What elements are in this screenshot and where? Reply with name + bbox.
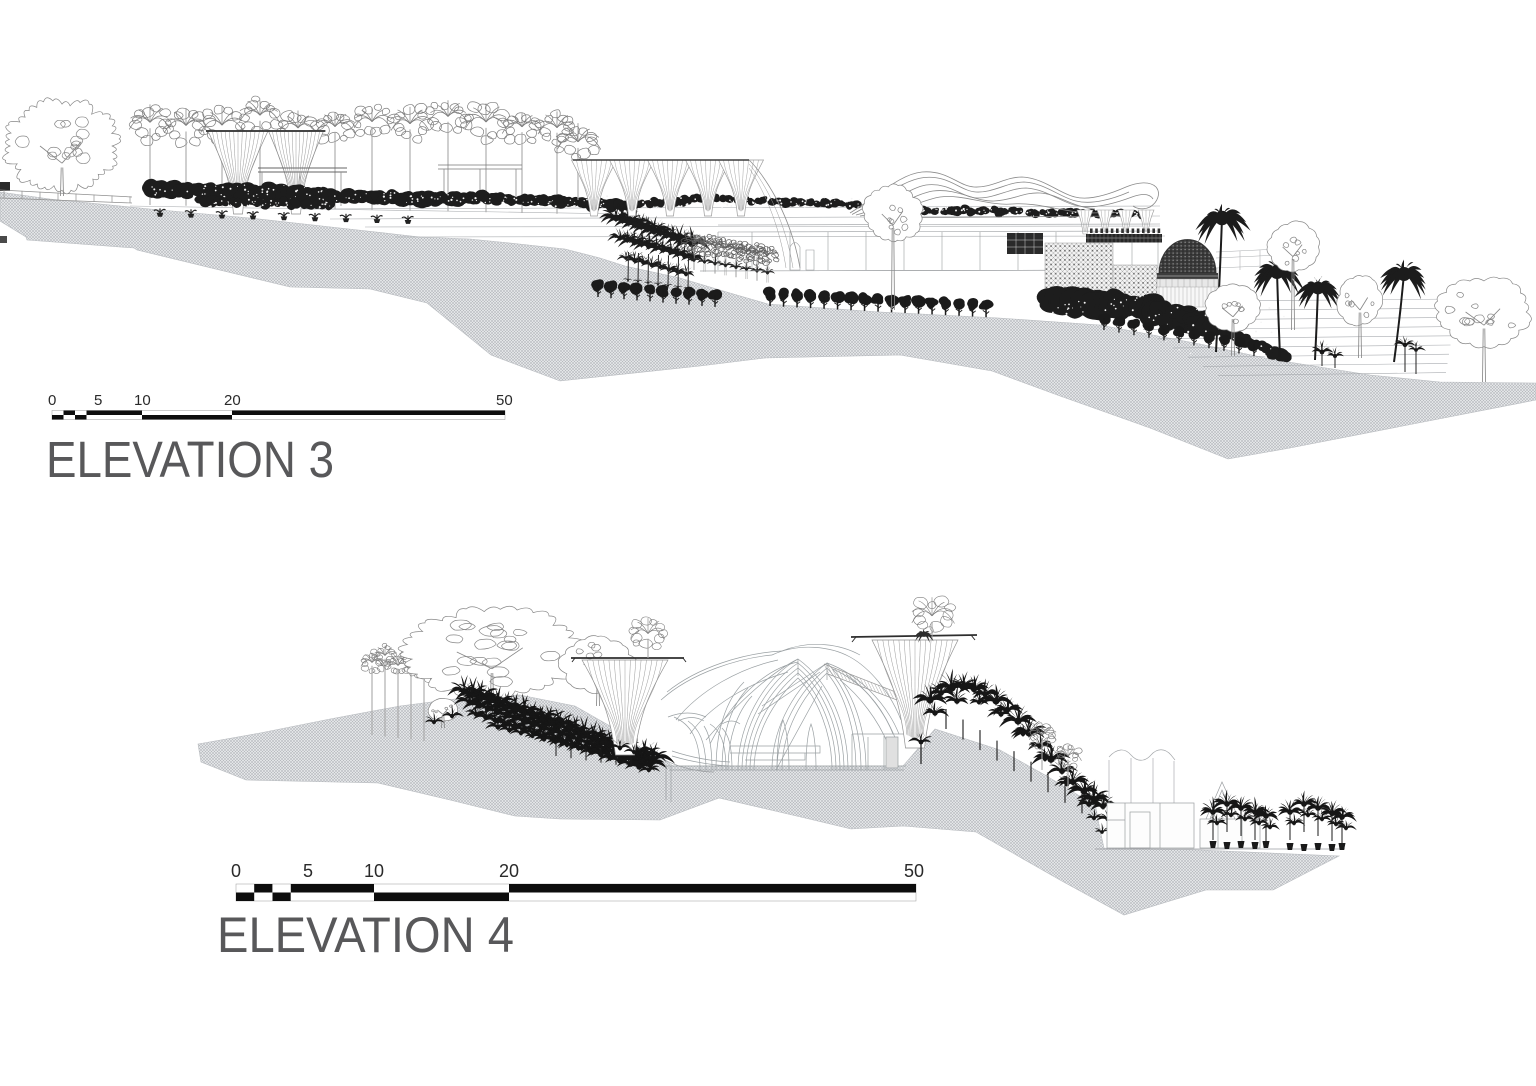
svg-text:ELEVATION 4: ELEVATION 4 bbox=[217, 907, 514, 963]
svg-text:5: 5 bbox=[303, 861, 313, 881]
svg-text:10: 10 bbox=[364, 861, 384, 881]
svg-text:20: 20 bbox=[499, 861, 519, 881]
svg-text:50: 50 bbox=[904, 861, 924, 881]
svg-text:10: 10 bbox=[134, 392, 151, 409]
svg-text:0: 0 bbox=[48, 392, 56, 409]
svg-text:5: 5 bbox=[94, 392, 102, 409]
svg-text:50: 50 bbox=[496, 392, 513, 409]
svg-text:0: 0 bbox=[231, 861, 241, 881]
svg-text:ELEVATION 3: ELEVATION 3 bbox=[46, 431, 334, 488]
svg-text:20: 20 bbox=[224, 392, 241, 409]
